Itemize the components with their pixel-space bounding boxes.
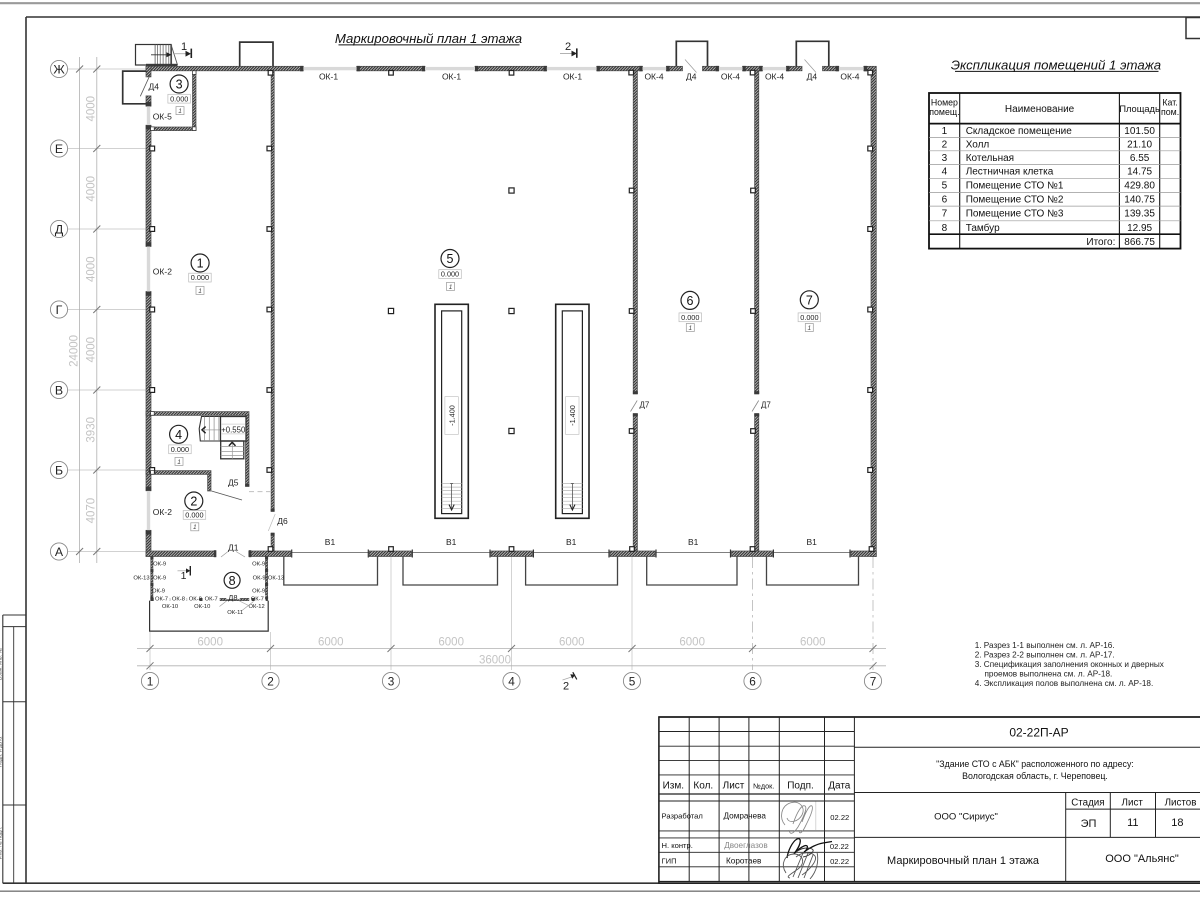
svg-text:4070: 4070 [85, 498, 97, 524]
svg-text:Стадия: Стадия [1071, 798, 1104, 809]
svg-text:В1: В1 [688, 537, 699, 547]
svg-text:0.000: 0.000 [185, 511, 203, 520]
svg-text:В: В [55, 383, 63, 397]
svg-text:139.35: 139.35 [1124, 208, 1155, 219]
svg-text:2: 2 [190, 495, 197, 509]
svg-text:2: 2 [267, 674, 274, 688]
svg-text:ООО "Альянс": ООО "Альянс" [1105, 853, 1179, 865]
svg-text:6: 6 [942, 195, 948, 206]
svg-text:6000: 6000 [197, 636, 223, 648]
svg-text:Коротаев: Коротаев [726, 857, 761, 866]
svg-text:1: 1 [178, 108, 182, 115]
svg-text:6: 6 [687, 294, 694, 308]
svg-text:1: 1 [198, 288, 202, 295]
svg-text:Д: Д [55, 222, 64, 236]
svg-text:Кат.: Кат. [1162, 98, 1177, 108]
svg-text:4: 4 [942, 167, 948, 178]
svg-text:Наименование: Наименование [1005, 104, 1075, 115]
svg-text:2. Разрез 2-2 выполнен см. л.: 2. Разрез 2-2 выполнен см. л. АР-17. [975, 651, 1115, 660]
svg-text:6: 6 [749, 674, 756, 688]
svg-text:101.50: 101.50 [1124, 126, 1155, 137]
svg-text:Д6: Д6 [277, 516, 288, 526]
svg-text:ОК-12: ОК-12 [248, 604, 264, 610]
svg-text:"Здание СТО с АБК" расположенн: "Здание СТО с АБК" расположенного по адр… [936, 759, 1134, 769]
svg-text:18: 18 [1171, 817, 1183, 829]
svg-text:В1: В1 [806, 537, 817, 547]
svg-text:Холл: Холл [966, 140, 990, 151]
svg-text:1. Разрез 1-1 выполнен см. л.: 1. Разрез 1-1 выполнен см. л. АР-16. [975, 641, 1115, 650]
svg-text:2: 2 [565, 41, 571, 53]
svg-text:6000: 6000 [559, 636, 585, 648]
svg-text:3. Спецификация заполнения око: 3. Спецификация заполнения оконных и две… [975, 660, 1164, 669]
svg-text:Д7: Д7 [640, 401, 650, 410]
svg-text:Д4: Д4 [807, 72, 818, 82]
svg-text:Лист: Лист [723, 780, 745, 791]
svg-text:Взам. инв. №: Взам. инв. № [0, 647, 4, 680]
svg-text:866.75: 866.75 [1124, 237, 1155, 248]
svg-text:ОК-4: ОК-4 [840, 72, 859, 82]
svg-text:Помещение СТО №2: Помещение СТО №2 [966, 195, 1064, 206]
svg-text:6000: 6000 [800, 636, 826, 648]
svg-text:ОК-9: ОК-9 [252, 589, 265, 595]
svg-text:ОК-9: ОК-9 [152, 589, 165, 595]
svg-text:Инв. № подл.: Инв. № подл. [0, 827, 4, 859]
svg-text:5: 5 [629, 674, 636, 688]
svg-text:ОК-4: ОК-4 [765, 72, 784, 82]
svg-text:ОК-9: ОК-9 [253, 575, 266, 581]
svg-text:0.000: 0.000 [800, 313, 818, 322]
svg-text:Разработал: Разработал [662, 812, 703, 821]
svg-text:3: 3 [176, 78, 183, 92]
svg-text:36000: 36000 [479, 655, 511, 667]
svg-text:7: 7 [870, 674, 877, 688]
svg-text:В1: В1 [325, 537, 336, 547]
svg-text:А: А [55, 545, 64, 559]
svg-text:4: 4 [508, 674, 515, 688]
svg-text:ОК-2: ОК-2 [153, 266, 172, 276]
svg-text:ОК-9: ОК-9 [153, 575, 166, 581]
svg-text:ОК-10: ОК-10 [162, 604, 178, 610]
svg-text:Изм.: Изм. [663, 780, 684, 791]
svg-text:1: 1 [688, 325, 692, 332]
svg-text:4000: 4000 [85, 256, 97, 282]
svg-text:Складское помещение: Складское помещение [966, 126, 1073, 137]
svg-text:Экспликация помещений 1 этажа: Экспликация помещений 1 этажа [951, 58, 1161, 73]
svg-text:ООО "Сириус": ООО "Сириус" [934, 812, 998, 823]
svg-text:ОК-4: ОК-4 [644, 72, 663, 82]
svg-text:ОК-1: ОК-1 [442, 72, 461, 82]
svg-text:1: 1 [449, 284, 453, 291]
svg-text:02.22: 02.22 [830, 857, 849, 866]
svg-text:4000: 4000 [85, 96, 97, 122]
svg-text:6000: 6000 [318, 636, 344, 648]
svg-text:6.55: 6.55 [1130, 153, 1150, 164]
svg-text:Д5: Д5 [228, 477, 239, 487]
svg-text:7: 7 [942, 208, 948, 219]
svg-text:0.000: 0.000 [170, 94, 188, 103]
svg-text:0.000: 0.000 [441, 270, 459, 279]
svg-text:Помещение СТО №1: Помещение СТО №1 [966, 181, 1064, 192]
svg-text:3: 3 [388, 674, 395, 688]
svg-text:Д7: Д7 [761, 401, 771, 410]
svg-text:6000: 6000 [679, 636, 705, 648]
svg-text:12.95: 12.95 [1127, 223, 1152, 234]
svg-text:-1.400: -1.400 [568, 405, 577, 426]
svg-text:1: 1 [197, 257, 204, 271]
svg-text:4. Экспликация полов выполнена: 4. Экспликация полов выполнена см. л. АР… [975, 679, 1154, 688]
svg-text:Ж: Ж [53, 62, 65, 76]
svg-text:1: 1 [807, 325, 811, 332]
svg-text:0.000: 0.000 [681, 313, 699, 322]
svg-text:429.80: 429.80 [1124, 181, 1155, 192]
svg-text:Номер: Номер [931, 98, 958, 108]
svg-text:11: 11 [1127, 817, 1138, 829]
svg-text:140.75: 140.75 [1124, 195, 1155, 206]
svg-text:проемов выполнена см. л. АР-18: проемов выполнена см. л. АР-18. [985, 670, 1113, 679]
svg-text:ОК-8: ОК-8 [172, 596, 185, 602]
svg-text:02-22П-АР: 02-22П-АР [1009, 726, 1068, 740]
svg-text:ОК-2: ОК-2 [153, 507, 172, 517]
svg-text:14.75: 14.75 [1127, 167, 1152, 178]
svg-text:Вологодская область, г. Черепо: Вологодская область, г. Череповец. [962, 771, 1108, 781]
svg-text:Маркировочный план 1 этажа: Маркировочный план 1 этажа [335, 31, 522, 46]
svg-text:8: 8 [942, 223, 948, 234]
svg-text:ОК-13: ОК-13 [268, 575, 284, 581]
svg-text:1: 1 [177, 459, 181, 466]
svg-text:№док.: №док. [753, 782, 774, 791]
svg-text:ОК-13: ОК-13 [133, 575, 149, 581]
svg-text:Итого:: Итого: [1086, 237, 1115, 248]
svg-text:Кол.: Кол. [693, 780, 713, 791]
svg-text:21.10: 21.10 [1127, 140, 1152, 151]
svg-text:ОК-1: ОК-1 [319, 72, 338, 82]
svg-text:Двоеглазов: Двоеглазов [724, 841, 768, 850]
svg-text:02.22: 02.22 [830, 813, 849, 822]
svg-text:+0.550: +0.550 [221, 425, 246, 434]
svg-text:Листов: Листов [1165, 798, 1197, 809]
svg-text:4: 4 [175, 428, 182, 442]
svg-text:3: 3 [942, 153, 948, 164]
svg-text:1: 1 [942, 126, 948, 137]
svg-text:0.000: 0.000 [171, 445, 189, 454]
svg-text:5: 5 [447, 252, 454, 266]
svg-text:ОК-7: ОК-7 [205, 596, 218, 602]
svg-text:4000: 4000 [85, 337, 97, 363]
svg-text:3930: 3930 [85, 417, 97, 443]
svg-text:Тамбур: Тамбур [966, 222, 1000, 234]
svg-text:пом.: пом. [1161, 107, 1179, 117]
svg-text:Площадь: Площадь [1119, 104, 1160, 114]
svg-text:ЭП: ЭП [1081, 818, 1097, 830]
svg-text:1: 1 [181, 570, 187, 582]
svg-text:0.000: 0.000 [191, 273, 209, 282]
svg-text:Подп.: Подп. [787, 780, 814, 791]
svg-text:Маркировочный план 1 этажа: Маркировочный план 1 этажа [887, 855, 1040, 867]
svg-text:5: 5 [942, 181, 948, 192]
svg-text:Г: Г [56, 303, 63, 317]
svg-text:2: 2 [942, 140, 948, 151]
svg-text:В1: В1 [446, 537, 457, 547]
svg-text:4000: 4000 [85, 176, 97, 202]
svg-text:1: 1 [193, 524, 197, 531]
svg-text:помещ.: помещ. [929, 107, 959, 117]
svg-text:ГИП: ГИП [662, 857, 677, 866]
svg-text:Подп. и дата: Подп. и дата [0, 737, 4, 768]
svg-text:Е: Е [55, 142, 63, 156]
svg-text:Домрачева: Домрачева [724, 812, 767, 821]
svg-text:Помещение СТО №3: Помещение СТО №3 [966, 208, 1064, 219]
svg-text:ОК-10: ОК-10 [194, 604, 210, 610]
svg-text:ОК-9: ОК-9 [153, 562, 166, 568]
svg-text:7: 7 [806, 293, 813, 307]
svg-text:Д4: Д4 [149, 82, 160, 92]
svg-text:8: 8 [229, 574, 236, 588]
svg-text:Д1: Д1 [228, 542, 239, 552]
svg-text:-1.400: -1.400 [447, 405, 456, 426]
svg-text:6000: 6000 [438, 636, 464, 648]
svg-text:Дата: Дата [828, 780, 851, 791]
svg-text:ОК-1: ОК-1 [563, 72, 582, 82]
svg-text:В1: В1 [566, 537, 577, 547]
svg-text:1: 1 [147, 674, 154, 688]
svg-text:Н. контр.: Н. контр. [662, 841, 693, 850]
svg-text:Лист: Лист [1122, 798, 1144, 809]
svg-text:ОК-9: ОК-9 [252, 562, 265, 568]
svg-text:Лестничная клетка: Лестничная клетка [966, 167, 1054, 178]
svg-text:ОК-5: ОК-5 [153, 112, 172, 122]
svg-text:02.22: 02.22 [830, 842, 849, 851]
svg-text:24000: 24000 [68, 335, 80, 367]
svg-text:ОК-11: ОК-11 [227, 610, 243, 616]
svg-text:Д4: Д4 [686, 72, 697, 82]
svg-text:ОК-4: ОК-4 [721, 72, 740, 82]
svg-text:2: 2 [563, 681, 569, 693]
svg-text:Д8: Д8 [228, 593, 237, 602]
svg-text:ОК-7: ОК-7 [155, 596, 168, 602]
svg-text:Котельная: Котельная [966, 153, 1014, 164]
svg-text:Б: Б [55, 463, 63, 477]
